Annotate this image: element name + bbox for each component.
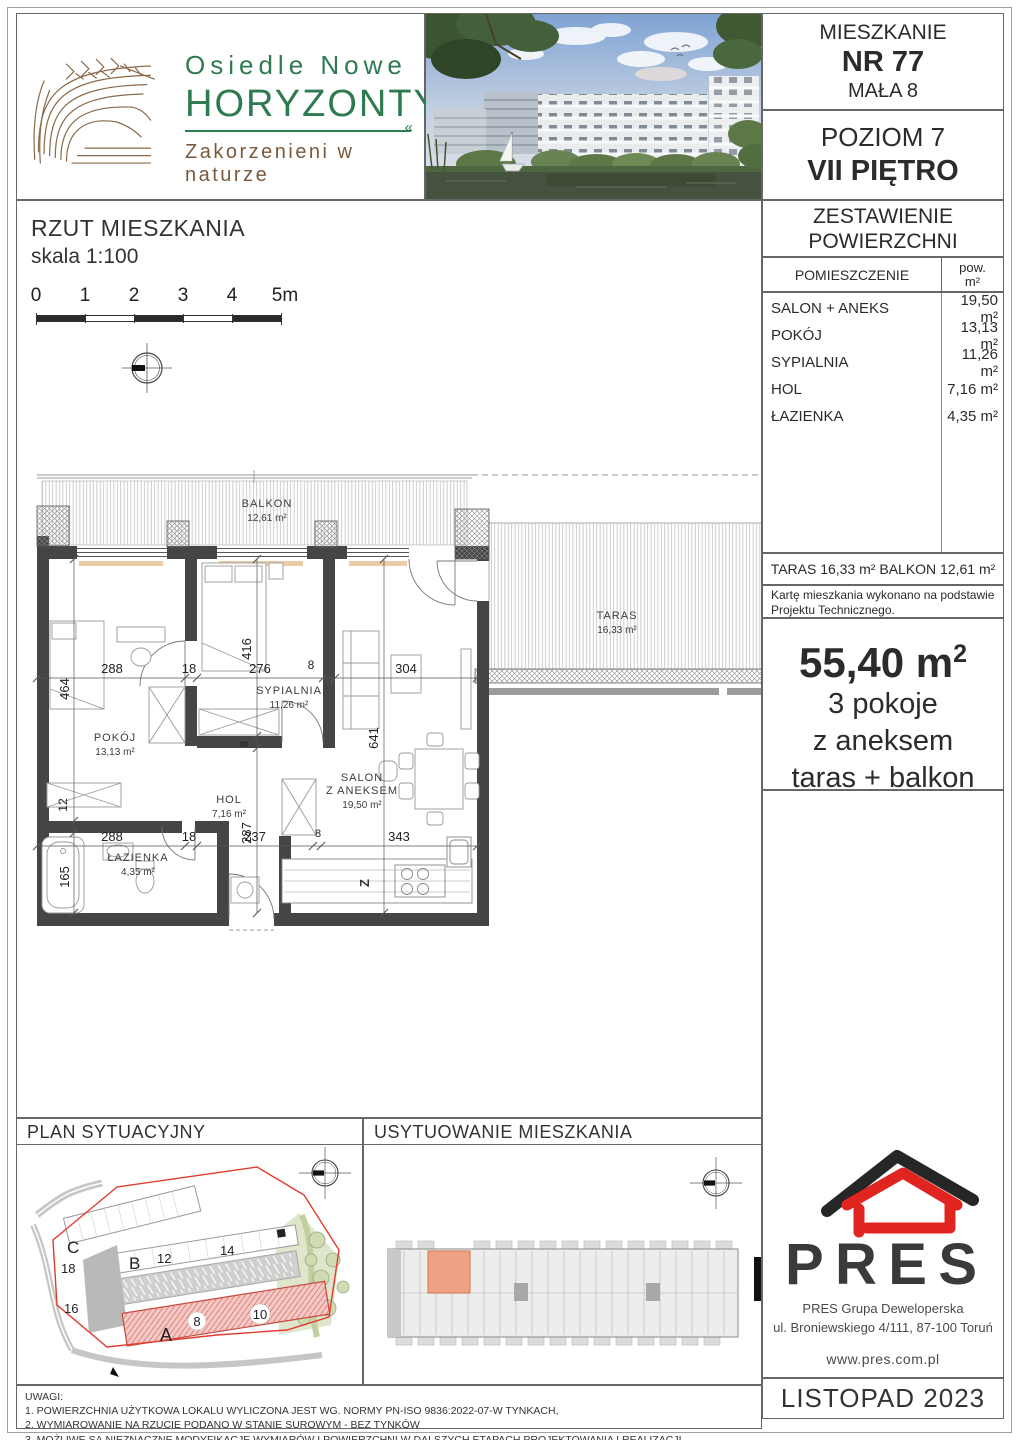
site-plan-panel: PLAN SYTUACYJNY (16, 1118, 363, 1385)
pres-logo-text: PRES (785, 1232, 981, 1289)
plan-title: RZUT MIESZKANIA (31, 215, 245, 242)
pres-logo-icon: PRES (777, 1129, 989, 1289)
areas-table-header: POMIESZCZENIE pow. m² (762, 257, 1004, 292)
technical-note-panel: Kartę mieszkania wykonano na podstawie P… (762, 585, 1004, 618)
apartment-number: NR 77 (842, 46, 924, 79)
developer-address: ul. Broniewskiego 4/111, 87-100 Toruń (773, 1318, 993, 1337)
summary-line3: z aneksem (813, 723, 953, 760)
table-row: HOL 7,16 m² (763, 376, 1003, 403)
kitchen-sink-mark: Z (357, 879, 372, 887)
scalebar-1: 1 (80, 285, 91, 307)
areas-table-body: SALON + ANEKS 19,50 m² POKÓJ 13,13 m² SY… (762, 292, 1004, 553)
developer-website: www.pres.com.pl (826, 1351, 939, 1367)
location-drawing (364, 1145, 761, 1384)
water (426, 172, 761, 199)
label-building-a: A (160, 1325, 172, 1345)
pokoj-label: POKÓJ (94, 731, 136, 744)
label-10: 10 (253, 1307, 267, 1322)
north-compass-icon (122, 343, 172, 393)
label-14: 14 (220, 1243, 234, 1258)
room-area: 11,26 m² (943, 346, 1003, 380)
pokoj-area-label: 13,13 m² (95, 747, 135, 758)
dim-464: 464 (57, 678, 72, 700)
areas-title-panel: ZESTAWIENIE POWIERZCHNI (762, 200, 1004, 257)
entrance-arrow-icon (110, 1367, 119, 1377)
dim-12: 12 (56, 798, 70, 812)
divider-arrow-icon: « (405, 119, 413, 136)
apartment-card-sheet: Osiedle Nowe HORYZONTY « Zakorzenieni w … (0, 0, 1018, 1440)
hol-label: HOL (216, 794, 242, 806)
developer-panel: PRES PRES Grupa Deweloperska ul. Broniew… (762, 790, 1004, 1378)
outdoor-areas-panel: TARAS 16,33 m² BALKON 12,61 m² (762, 553, 1004, 585)
taras-area-label: 16,33 m² (597, 625, 637, 636)
floor-plan-drawing: BALKON 12,61 m² TARAS 16,33 m² (17, 431, 761, 961)
salon-area-label: 19,50 m² (342, 800, 382, 811)
sypialnia-area-label: 11,26 m² (270, 700, 309, 711)
location-panel: USYTUOWANIE MIESZKANIA (363, 1118, 762, 1385)
scalebar-2: 2 (129, 285, 140, 307)
kitchen-fixtures (282, 837, 472, 903)
notes-title: UWAGI: (25, 1390, 753, 1404)
estate-name-line1: Osiedle Nowe (185, 50, 417, 81)
estate-name-line2: HORYZONTY (185, 83, 417, 126)
notes-panel: UWAGI: 1. POWIERZCHNIA UŻYTKOWA LOKALU W… (16, 1385, 762, 1429)
brand-panel: Osiedle Nowe HORYZONTY « Zakorzenieni w … (16, 13, 425, 200)
dim-8-top: 8 (308, 658, 315, 672)
note-line-3: 3. MOŻLIWE SĄ NIEZNACZNE MODYFIKACJE WYM… (25, 1433, 753, 1440)
scalebar-3: 3 (178, 285, 189, 307)
taras-label: TARAS (597, 610, 638, 622)
dim-343: 343 (388, 829, 410, 844)
scalebar-4: 4 (227, 285, 238, 307)
lazienka-label: ŁAZIENKA (107, 852, 168, 864)
dim-18-top: 18 (182, 661, 196, 676)
col-room-header: POMIESZCZENIE (795, 267, 909, 283)
windows (77, 549, 409, 557)
apartment-label: MIESZKANIE (819, 21, 946, 45)
salon-label-1: SALON (341, 772, 383, 784)
col-area-header-1: pow. (959, 261, 986, 275)
label-18: 18 (61, 1261, 75, 1276)
label-building-b: B (129, 1254, 140, 1273)
areas-title-line2: POWIERZCHNI (808, 229, 957, 254)
table-row: ŁAZIENKA 4,35 m² (763, 403, 1003, 430)
label-8: 8 (193, 1314, 200, 1329)
salon-label-2: Z ANEKSEM (326, 785, 398, 797)
technical-note-text: Kartę mieszkania wykonano na podstawie P… (763, 586, 1003, 620)
issue-date-panel: LISTOPAD 2023 (762, 1378, 1004, 1419)
dim-165: 165 (57, 866, 72, 888)
total-area-value: 55,40 m (799, 639, 953, 686)
level-label: POZIOM 7 (821, 122, 945, 153)
lazienka-area-label: 4,35 m² (121, 867, 156, 878)
balcony-area: BALKON 12,61 m² (37, 470, 472, 545)
terrace-area: TARAS 16,33 m² (472, 475, 761, 695)
label-12: 12 (157, 1251, 171, 1266)
developer-company: PRES Grupa Deweloperska (802, 1299, 963, 1318)
dim-287: 287 (239, 822, 254, 844)
highlighted-apartment (428, 1251, 470, 1293)
balkon-area-label: 12,61 m² (247, 513, 287, 524)
scalebar-icon (36, 313, 283, 325)
col-area-header-2: m² (965, 275, 980, 289)
location-title: USYTUOWANIE MIESZKANIA (364, 1119, 761, 1145)
site-plan-title: PLAN SYTUACYJNY (17, 1119, 362, 1145)
sypialnia-label: SYPIALNIA (256, 685, 322, 697)
scalebar-0: 0 (31, 285, 42, 307)
building-name: MAŁA 8 (848, 80, 918, 103)
total-area-sup: 2 (953, 640, 967, 668)
hol-area-label: 7,16 m² (212, 809, 247, 820)
edge-marker (754, 1257, 761, 1301)
dim-8-bottom: 8 (315, 828, 321, 840)
label-16: 16 (64, 1301, 78, 1316)
bedroom2-furniture (47, 621, 185, 807)
scalebar-5: 5m (272, 285, 298, 307)
dim-276: 276 (249, 661, 271, 676)
room-name: SALON + ANEKS (763, 300, 943, 317)
dim-8-mid: 8 (239, 741, 251, 747)
balkon-label: BALKON (242, 498, 293, 510)
room-area: 7,16 m² (943, 381, 1003, 398)
areas-title-line1: ZESTAWIENIE (813, 204, 953, 229)
brand-tree-icon (31, 38, 171, 178)
room-name: ŁAZIENKA (763, 408, 943, 425)
floor-plan-panel: RZUT MIESZKANIA skala 1:100 0 1 2 3 4 5m (16, 200, 762, 1118)
dim-288-bottom: 288 (101, 829, 123, 844)
estate-tagline: Zakorzenieni w naturze (185, 141, 417, 187)
photo-panel (425, 13, 762, 200)
location-compass-icon (690, 1157, 742, 1209)
site-compass-icon (299, 1147, 351, 1199)
note-line-1: 1. POWIERZCHNIA UŻYTKOWA LOKALU WYLICZON… (25, 1404, 753, 1418)
room-name: POKÓJ (763, 327, 943, 344)
site-plan-drawing: C 18 16 B 12 14 8 10 A (17, 1145, 362, 1384)
dim-304: 304 (395, 661, 417, 676)
issue-date: LISTOPAD 2023 (781, 1383, 985, 1414)
note-line-2: 2. WYMIAROWANIE NA RZUCIE PODANO W STANI… (25, 1418, 753, 1432)
label-building-c: C (67, 1238, 79, 1257)
dim-288-top: 288 (101, 661, 123, 676)
building-render-photo (426, 14, 761, 199)
floor-label: VII PIĘTRO (807, 155, 958, 188)
dim-641: 641 (366, 727, 381, 749)
room-area: 4,35 m² (943, 408, 1003, 425)
dim-18-bottom: 18 (182, 829, 196, 844)
plan-scale: skala 1:100 (31, 245, 138, 269)
dim-416: 416 (239, 638, 254, 660)
room-name: HOL (763, 381, 943, 398)
summary-line2: 3 pokoje (828, 686, 938, 723)
room-name: SYPIALNIA (763, 354, 943, 371)
summary-panel: 55,40 m2 3 pokoje z aneksem taras + balk… (762, 618, 1004, 790)
table-row: SYPIALNIA 11,26 m² (763, 349, 1003, 376)
floor-panel: POZIOM 7 VII PIĘTRO (762, 110, 1004, 200)
outdoor-areas-text: TARAS 16,33 m² BALKON 12,61 m² (771, 561, 996, 577)
apartment-id-panel: MIESZKANIE NR 77 MAŁA 8 (762, 13, 1004, 110)
